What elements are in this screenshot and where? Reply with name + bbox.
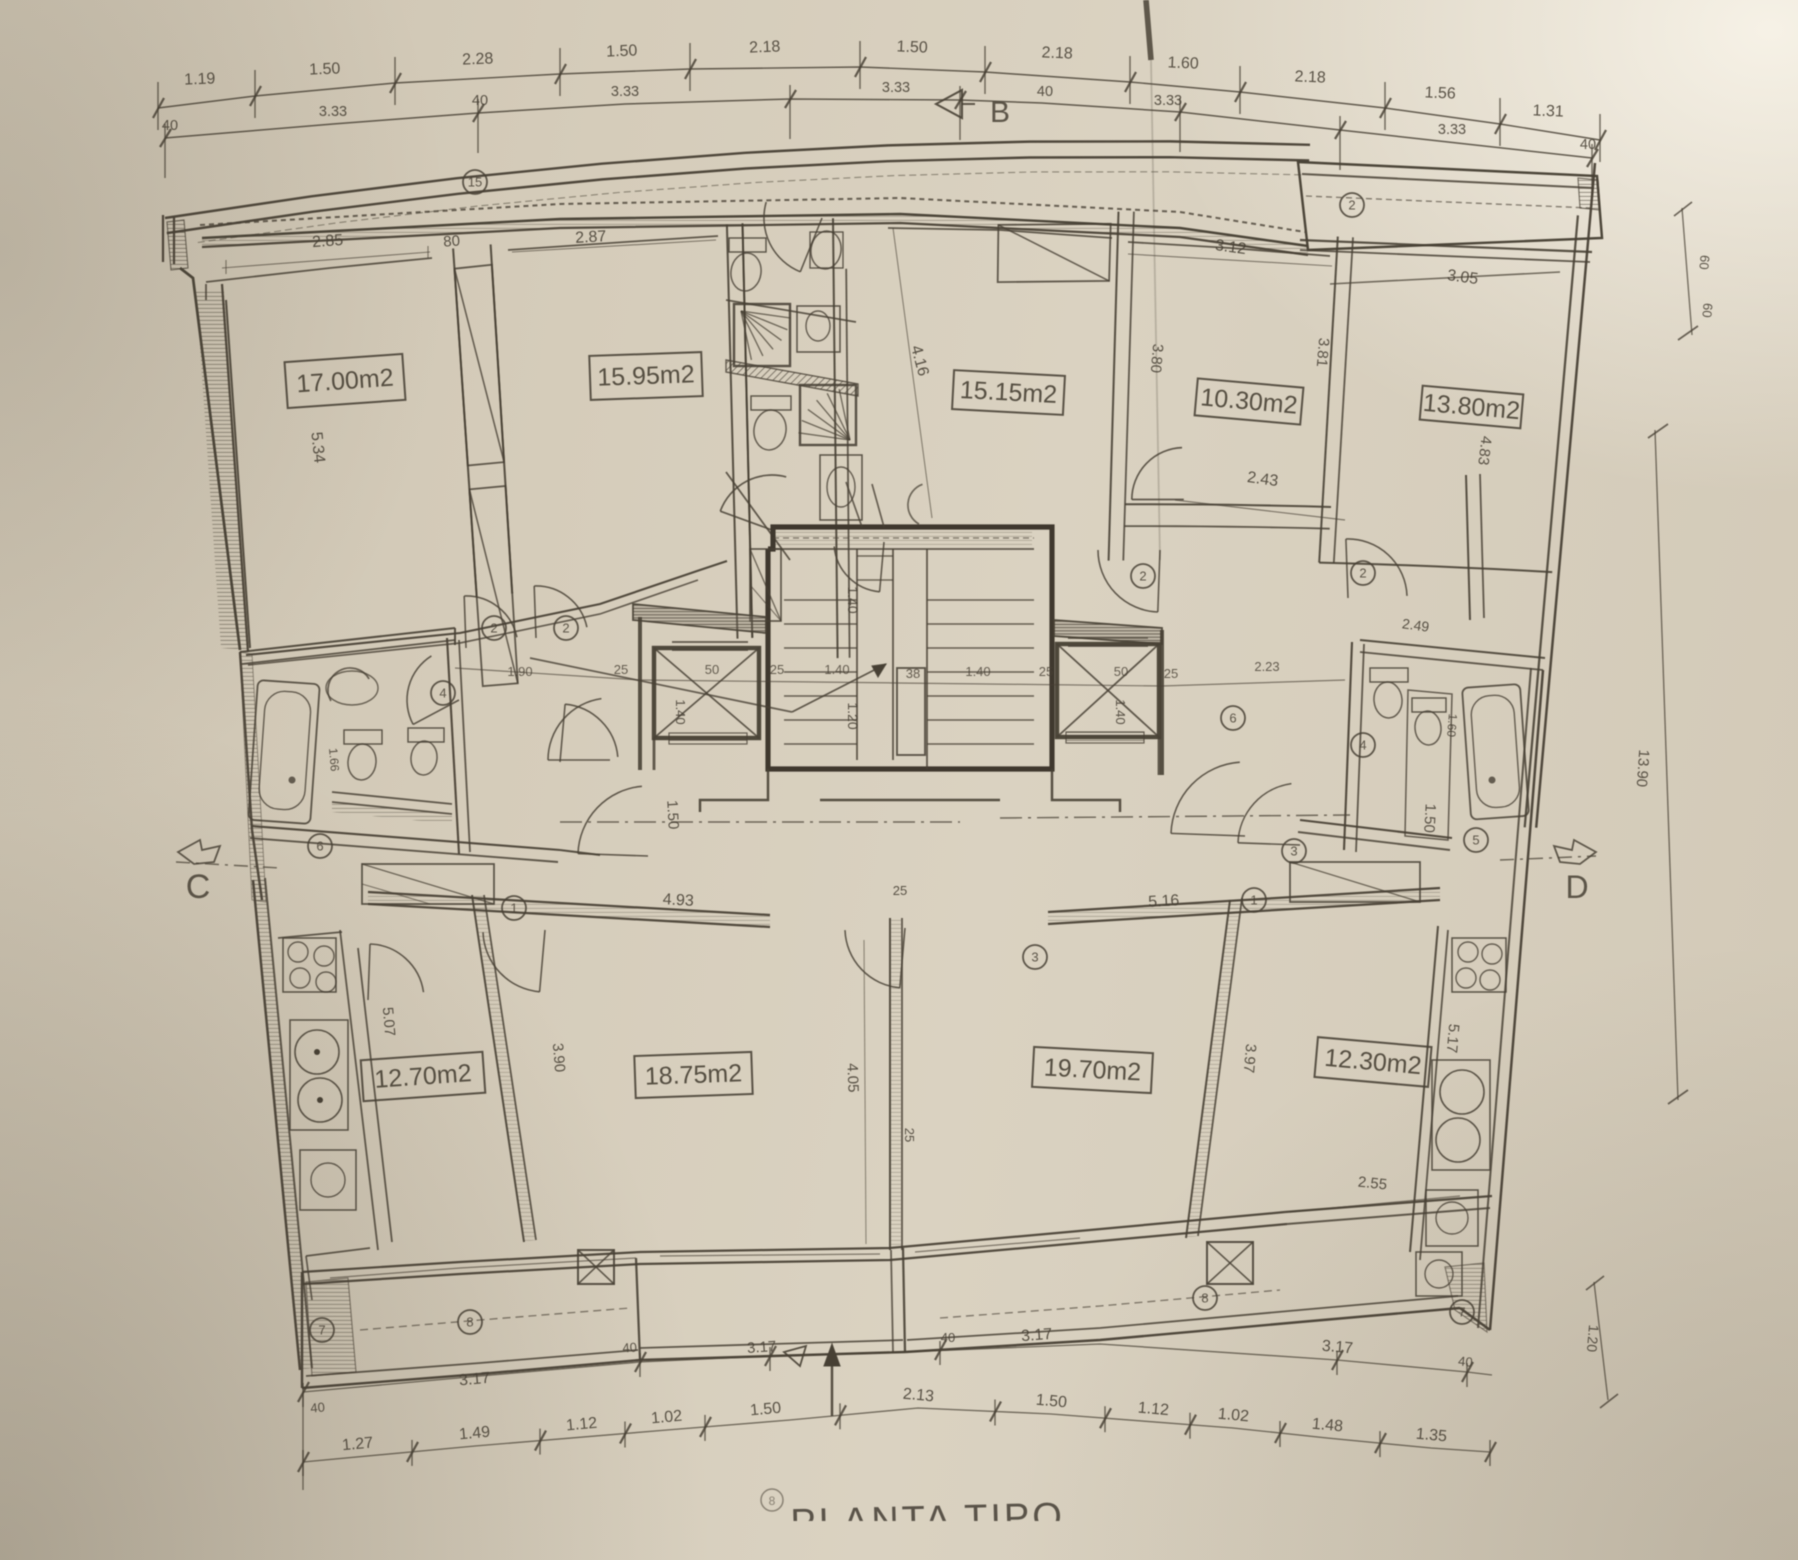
svg-text:1.66: 1.66 xyxy=(326,747,342,772)
svg-text:6: 6 xyxy=(316,839,323,854)
svg-text:25: 25 xyxy=(1164,666,1178,681)
svg-text:1.60: 1.60 xyxy=(1444,713,1460,738)
svg-text:50: 50 xyxy=(1114,664,1128,679)
svg-text:1: 1 xyxy=(510,901,517,916)
svg-text:1.40: 1.40 xyxy=(673,699,688,724)
svg-text:40: 40 xyxy=(941,1330,955,1345)
svg-text:3: 3 xyxy=(1031,950,1038,965)
svg-text:3.33: 3.33 xyxy=(611,84,639,100)
svg-text:3.97: 3.97 xyxy=(1240,1043,1259,1074)
svg-text:1.02: 1.02 xyxy=(1217,1406,1250,1426)
svg-text:80: 80 xyxy=(443,232,461,250)
svg-text:3.17: 3.17 xyxy=(458,1370,491,1390)
svg-text:1.48: 1.48 xyxy=(1311,1416,1344,1436)
svg-text:40: 40 xyxy=(622,1340,637,1356)
svg-text:2.28: 2.28 xyxy=(462,50,494,68)
svg-text:1.40: 1.40 xyxy=(824,662,849,677)
svg-text:2.85: 2.85 xyxy=(312,232,344,251)
svg-text:38: 38 xyxy=(906,666,920,681)
svg-text:2: 2 xyxy=(490,621,497,636)
svg-text:1.40: 1.40 xyxy=(965,664,990,679)
svg-text:1.40: 1.40 xyxy=(1113,699,1128,724)
svg-text:1.50: 1.50 xyxy=(1420,803,1439,833)
svg-text:1.12: 1.12 xyxy=(1137,1399,1170,1419)
svg-text:4: 4 xyxy=(1359,738,1366,753)
svg-text:3.33: 3.33 xyxy=(1438,122,1466,138)
svg-text:8: 8 xyxy=(769,1494,776,1508)
svg-text:15: 15 xyxy=(468,175,482,190)
svg-text:6: 6 xyxy=(1229,711,1236,726)
svg-text:PLANTA TIPO: PLANTA TIPO xyxy=(790,1496,1065,1545)
svg-text:2.18: 2.18 xyxy=(1041,44,1073,62)
svg-text:2: 2 xyxy=(1359,566,1366,581)
svg-text:2.43: 2.43 xyxy=(1246,469,1279,490)
svg-text:1.60: 1.60 xyxy=(1167,54,1199,72)
svg-text:5.16: 5.16 xyxy=(1148,892,1180,911)
svg-text:4.83: 4.83 xyxy=(1474,435,1494,466)
svg-text:2.18: 2.18 xyxy=(1294,68,1326,86)
svg-text:1.40: 1.40 xyxy=(845,586,861,613)
svg-text:19.70m2: 19.70m2 xyxy=(1043,1053,1142,1086)
svg-text:5: 5 xyxy=(1472,833,1479,848)
svg-text:12.30m2: 12.30m2 xyxy=(1323,1044,1422,1080)
svg-text:25: 25 xyxy=(902,1128,917,1142)
svg-text:3.33: 3.33 xyxy=(319,104,347,120)
svg-text:7: 7 xyxy=(1458,1305,1465,1320)
svg-text:13.90: 13.90 xyxy=(1633,749,1653,788)
svg-text:2.49: 2.49 xyxy=(1401,615,1430,635)
svg-text:3.17: 3.17 xyxy=(1021,1326,1053,1345)
svg-text:1.49: 1.49 xyxy=(458,1424,491,1444)
svg-text:1.50: 1.50 xyxy=(309,60,341,78)
svg-text:1.12: 1.12 xyxy=(565,1415,598,1435)
svg-text:2: 2 xyxy=(1139,569,1146,584)
svg-text:1.50: 1.50 xyxy=(1035,1392,1068,1412)
svg-text:1.90: 1.90 xyxy=(507,664,532,679)
svg-text:40: 40 xyxy=(162,118,178,134)
svg-text:1.50: 1.50 xyxy=(663,800,682,830)
svg-text:3.33: 3.33 xyxy=(1154,93,1182,109)
svg-text:40: 40 xyxy=(1457,1353,1473,1369)
svg-text:1.20: 1.20 xyxy=(1584,1324,1602,1353)
svg-text:1.50: 1.50 xyxy=(606,42,638,60)
svg-text:3.90: 3.90 xyxy=(549,1042,568,1073)
svg-text:15.15m2: 15.15m2 xyxy=(959,376,1058,409)
svg-text:4: 4 xyxy=(439,686,446,701)
svg-text:1.02: 1.02 xyxy=(650,1408,683,1428)
svg-text:3.17: 3.17 xyxy=(1321,1338,1354,1358)
svg-text:4.93: 4.93 xyxy=(662,891,694,910)
svg-text:25: 25 xyxy=(770,662,784,677)
svg-text:13.80m2: 13.80m2 xyxy=(1422,389,1521,425)
svg-text:5.34: 5.34 xyxy=(307,431,327,464)
svg-text:1.27: 1.27 xyxy=(341,1435,374,1455)
svg-text:25: 25 xyxy=(1039,664,1053,679)
svg-text:40: 40 xyxy=(472,93,488,109)
svg-text:3.17: 3.17 xyxy=(747,1338,777,1357)
svg-text:1.35: 1.35 xyxy=(1415,1426,1448,1446)
svg-text:2: 2 xyxy=(1348,198,1355,213)
svg-text:3.33: 3.33 xyxy=(882,80,910,96)
svg-text:12.70m2: 12.70m2 xyxy=(373,1059,472,1094)
svg-text:25: 25 xyxy=(893,883,907,898)
svg-text:C: C xyxy=(186,868,211,906)
svg-text:2.23: 2.23 xyxy=(1254,659,1279,674)
svg-text:8: 8 xyxy=(466,1315,473,1330)
svg-text:3: 3 xyxy=(1290,844,1297,859)
svg-text:15.95m2: 15.95m2 xyxy=(597,360,695,391)
svg-text:1.31: 1.31 xyxy=(1532,102,1564,120)
svg-text:40: 40 xyxy=(310,1399,326,1415)
svg-text:5.17: 5.17 xyxy=(1443,1023,1462,1054)
svg-text:1.20: 1.20 xyxy=(845,702,861,729)
svg-text:60: 60 xyxy=(1699,303,1715,319)
svg-text:40: 40 xyxy=(1580,137,1596,153)
svg-text:25: 25 xyxy=(614,662,628,677)
svg-text:40: 40 xyxy=(1037,84,1053,100)
svg-text:3.80: 3.80 xyxy=(1147,343,1166,374)
svg-text:1.19: 1.19 xyxy=(184,70,216,88)
svg-text:2.13: 2.13 xyxy=(902,1386,935,1406)
svg-text:1.56: 1.56 xyxy=(1424,84,1456,102)
svg-text:3.12: 3.12 xyxy=(1214,237,1247,258)
svg-text:7: 7 xyxy=(318,1323,325,1338)
svg-text:18.75m2: 18.75m2 xyxy=(644,1059,742,1090)
svg-text:3.81: 3.81 xyxy=(1313,337,1332,368)
svg-text:B: B xyxy=(990,96,1010,129)
svg-text:8: 8 xyxy=(1201,1291,1208,1306)
svg-text:D: D xyxy=(1565,869,1588,905)
svg-text:10.30m2: 10.30m2 xyxy=(1199,383,1298,419)
svg-text:4.05: 4.05 xyxy=(843,1063,861,1093)
svg-text:2: 2 xyxy=(562,621,569,636)
svg-text:5.07: 5.07 xyxy=(379,1006,398,1037)
svg-text:2.55: 2.55 xyxy=(1357,1174,1388,1194)
svg-text:17.00m2: 17.00m2 xyxy=(295,364,394,399)
svg-text:2.87: 2.87 xyxy=(575,228,607,247)
svg-text:1.50: 1.50 xyxy=(896,38,928,56)
svg-text:50: 50 xyxy=(705,662,719,677)
svg-text:3.05: 3.05 xyxy=(1446,267,1479,288)
svg-text:1.50: 1.50 xyxy=(749,1400,782,1420)
svg-text:2.18: 2.18 xyxy=(749,38,781,56)
svg-text:60: 60 xyxy=(1696,255,1712,271)
